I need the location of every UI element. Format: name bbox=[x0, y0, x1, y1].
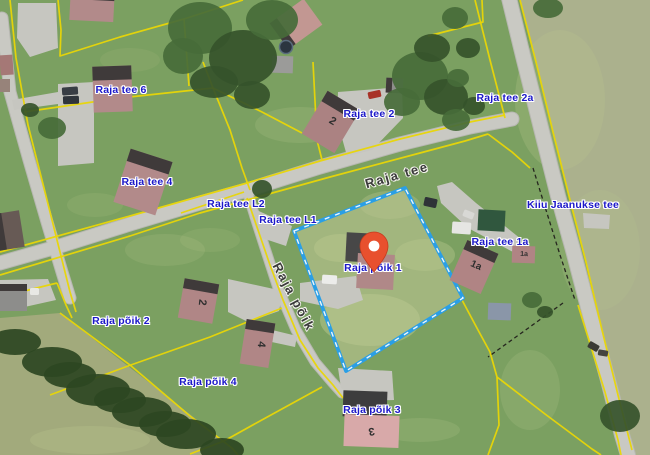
grass-patch bbox=[30, 426, 150, 454]
tree bbox=[442, 109, 470, 131]
tree bbox=[442, 7, 468, 29]
building bbox=[0, 55, 14, 76]
building bbox=[0, 284, 27, 311]
tree bbox=[456, 38, 480, 58]
hedge bbox=[139, 411, 191, 437]
tree bbox=[414, 34, 450, 62]
building-roof bbox=[69, 0, 115, 22]
tree bbox=[190, 66, 238, 98]
map-viewport[interactable]: 21a1a243 Raja teeRaja põikRaja tee 6Raja… bbox=[0, 0, 650, 455]
roof-ridge bbox=[386, 78, 393, 93]
building bbox=[69, 0, 115, 22]
tree bbox=[234, 81, 270, 109]
roof-ridge bbox=[92, 65, 131, 80]
trampoline bbox=[280, 41, 293, 54]
tree bbox=[447, 69, 469, 87]
building-roof bbox=[488, 303, 512, 321]
address-label: Raja tee 4 bbox=[121, 176, 172, 188]
tree bbox=[38, 117, 66, 139]
building bbox=[488, 303, 512, 321]
grass-patch bbox=[180, 228, 240, 252]
building-roof bbox=[0, 55, 14, 76]
building bbox=[477, 209, 505, 231]
building-roof bbox=[0, 79, 10, 92]
hedge bbox=[44, 362, 96, 388]
vehicle bbox=[30, 288, 39, 295]
tree bbox=[163, 38, 203, 74]
vehicle bbox=[63, 96, 79, 105]
tree bbox=[522, 292, 542, 308]
tree bbox=[537, 306, 553, 318]
tree bbox=[252, 180, 272, 198]
address-label: Raja tee 2a bbox=[476, 92, 533, 104]
roof-ridge bbox=[0, 284, 27, 291]
tree bbox=[21, 103, 39, 117]
address-label: Raja tee L2 bbox=[207, 198, 265, 210]
building bbox=[0, 79, 10, 92]
tree bbox=[246, 0, 298, 40]
vehicle bbox=[452, 221, 472, 234]
map-canvas: 21a1a243 bbox=[0, 0, 650, 455]
vehicle bbox=[322, 274, 338, 284]
address-label: Raja põik 3 bbox=[343, 404, 401, 416]
address-label: Raja põik 4 bbox=[179, 376, 237, 388]
address-label: Raja põik 2 bbox=[92, 315, 150, 327]
building-roof bbox=[477, 209, 505, 231]
address-label: Raja tee 6 bbox=[95, 84, 146, 96]
hedge bbox=[94, 387, 146, 413]
vehicle bbox=[62, 86, 79, 95]
driveway bbox=[583, 213, 610, 229]
grass-patch bbox=[67, 193, 123, 217]
address-label: Kiiu Jaanukse tee bbox=[527, 199, 619, 211]
address-label: Raja tee 2 bbox=[343, 108, 394, 120]
tree bbox=[600, 400, 640, 432]
address-label: Raja põik 1 bbox=[344, 262, 402, 274]
house-number: 2 bbox=[196, 299, 209, 306]
address-label: Raja tee 1a bbox=[471, 236, 528, 248]
address-label: Raja tee L1 bbox=[259, 214, 317, 226]
house-number: 1a bbox=[520, 251, 528, 258]
